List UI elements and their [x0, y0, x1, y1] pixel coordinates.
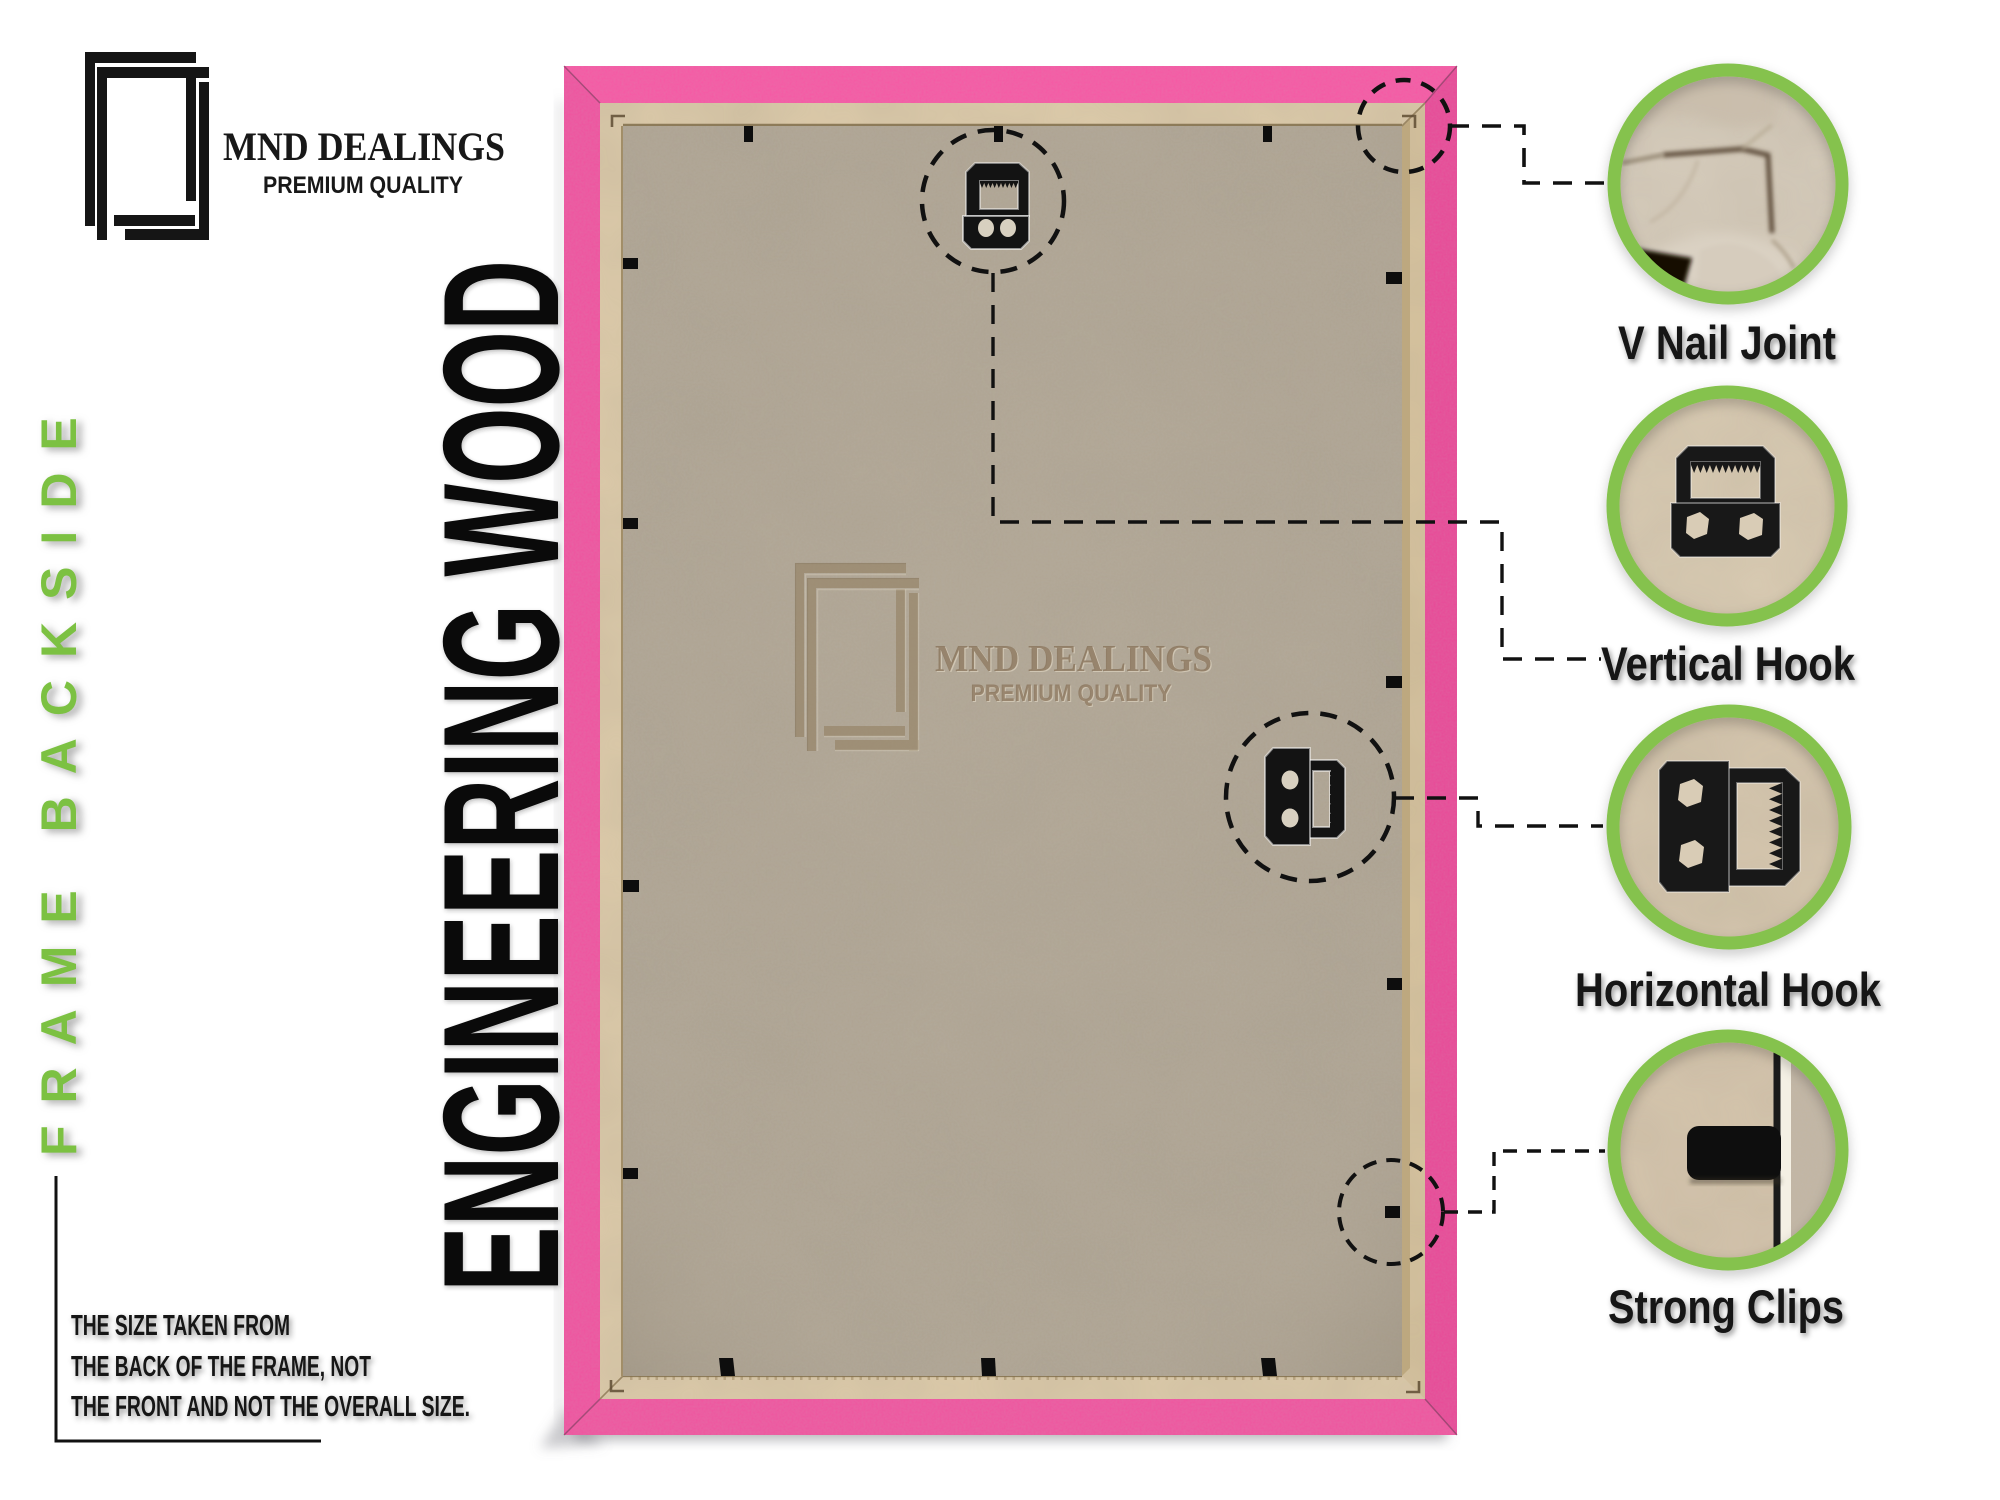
svg-text:MND DEALINGS: MND DEALINGS	[223, 124, 505, 169]
svg-text:THE FRONT AND NOT THE OVERALL: THE FRONT AND NOT THE OVERALL SIZE.	[71, 1391, 470, 1423]
svg-text:THE BACK OF THE FRAME, NOT: THE BACK OF THE FRAME, NOT	[71, 1351, 371, 1383]
svg-text:THE SIZE TAKEN FROM: THE SIZE TAKEN FROM	[71, 1310, 290, 1342]
svg-text:PREMIUM QUALITY: PREMIUM QUALITY	[971, 680, 1172, 707]
svg-text:ENGINEERING WOOD: ENGINEERING WOOD	[409, 260, 593, 1292]
svg-text:MND DEALINGS: MND DEALINGS	[935, 638, 1212, 680]
svg-text:Strong Clips: Strong Clips	[1608, 1280, 1844, 1333]
svg-text:PREMIUM QUALITY: PREMIUM QUALITY	[263, 172, 463, 199]
svg-text:Vertical Hook: Vertical Hook	[1601, 637, 1856, 690]
svg-text:Horizontal Hook: Horizontal Hook	[1575, 963, 1882, 1016]
svg-text:V Nail Joint: V Nail Joint	[1618, 316, 1836, 369]
